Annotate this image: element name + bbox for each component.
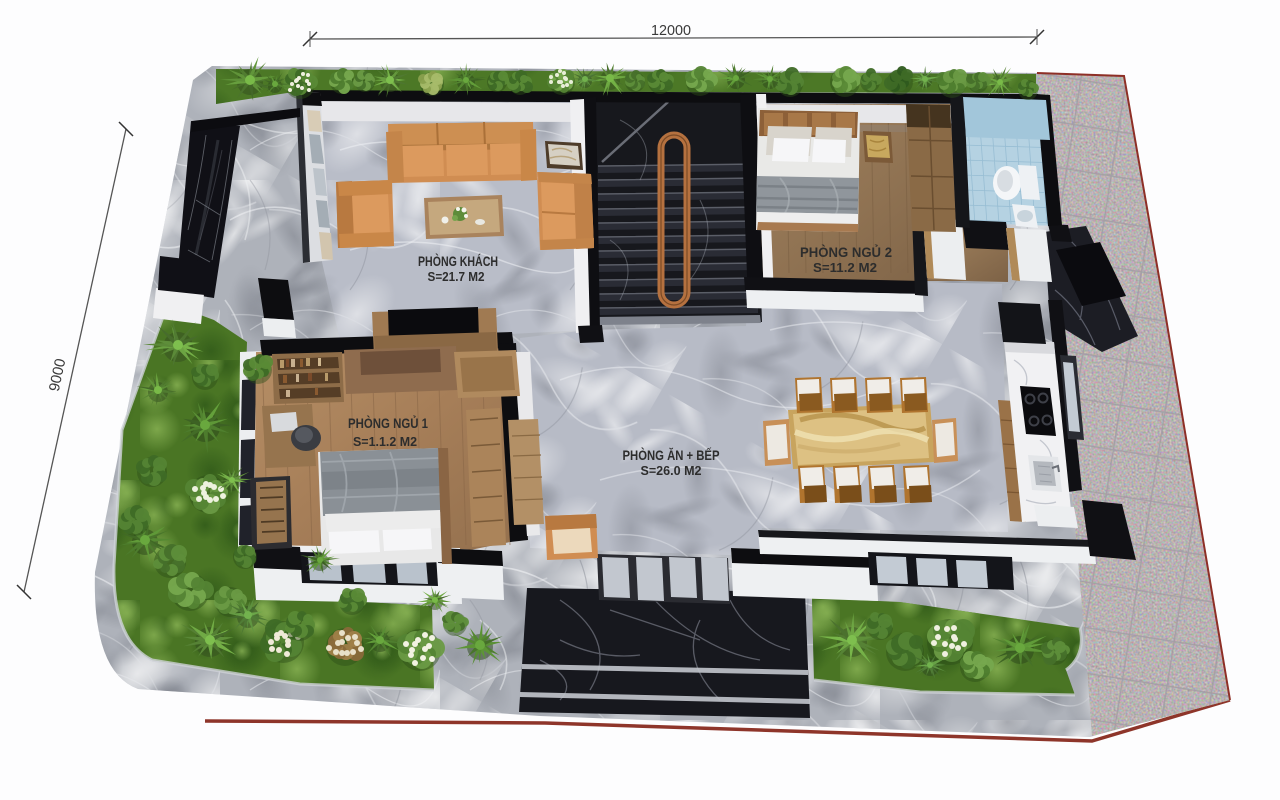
svg-text:S=26.0 M2: S=26.0 M2 [641,464,702,478]
svg-text:PHÒNG ĂN + BẾP: PHÒNG ĂN + BẾP [623,446,720,463]
svg-text:12000: 12000 [651,22,691,39]
svg-text:S=11.2 M2: S=11.2 M2 [813,261,877,275]
svg-text:PHÒNG NGỦ 1: PHÒNG NGỦ 1 [348,414,428,431]
svg-text:S=21.7 M2: S=21.7 M2 [428,270,485,284]
svg-text:PHÒNG NGỦ 2: PHÒNG NGỦ 2 [800,243,892,260]
svg-text:S=1.1.2 M2: S=1.1.2 M2 [353,435,417,449]
svg-text:PHÒNG KHÁCH: PHÒNG KHÁCH [418,252,498,269]
